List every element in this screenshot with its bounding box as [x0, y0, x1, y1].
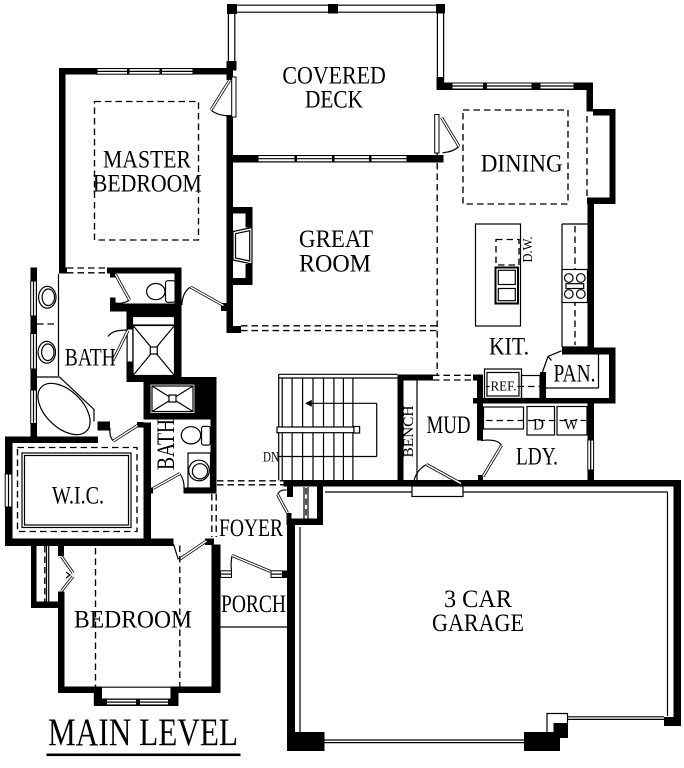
svg-text:MUD: MUD [427, 412, 471, 439]
svg-text:BENCH: BENCH [401, 405, 417, 457]
svg-text:DINING: DINING [481, 150, 563, 177]
svg-text:W.I.C.: W.I.C. [52, 483, 104, 510]
svg-text:BATH: BATH [65, 345, 116, 372]
svg-text:LDY.: LDY. [516, 444, 558, 471]
svg-text:GREAT: GREAT [299, 226, 373, 253]
svg-text:MASTER: MASTER [103, 147, 191, 174]
svg-text:FOYER: FOYER [219, 515, 283, 542]
svg-text:D: D [533, 417, 544, 434]
svg-text:KIT.: KIT. [489, 334, 529, 361]
svg-text:PORCH: PORCH [221, 591, 286, 618]
svg-text:PAN.: PAN. [554, 361, 596, 388]
svg-text:3 CAR: 3 CAR [444, 586, 512, 613]
svg-text:BATH: BATH [153, 419, 180, 470]
svg-text:GARAGE: GARAGE [432, 610, 524, 637]
svg-text:DN: DN [263, 450, 279, 466]
svg-text:REF.: REF. [491, 379, 517, 394]
svg-text:DECK: DECK [305, 86, 363, 113]
svg-text:W: W [564, 417, 579, 434]
svg-text:MAIN LEVEL: MAIN LEVEL [48, 711, 238, 754]
svg-text:ROOM: ROOM [299, 250, 371, 277]
svg-text:BEDROOM: BEDROOM [93, 171, 202, 198]
svg-text:D.W.: D.W. [520, 237, 535, 263]
svg-text:BEDROOM: BEDROOM [74, 607, 192, 634]
